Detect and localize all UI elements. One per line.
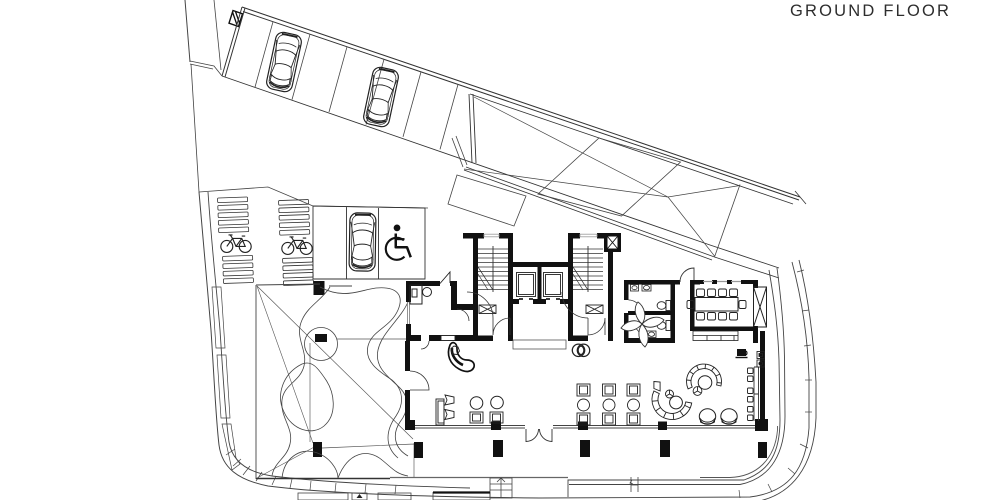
svg-text:GROUND FLOOR: GROUND FLOOR — [790, 2, 951, 20]
